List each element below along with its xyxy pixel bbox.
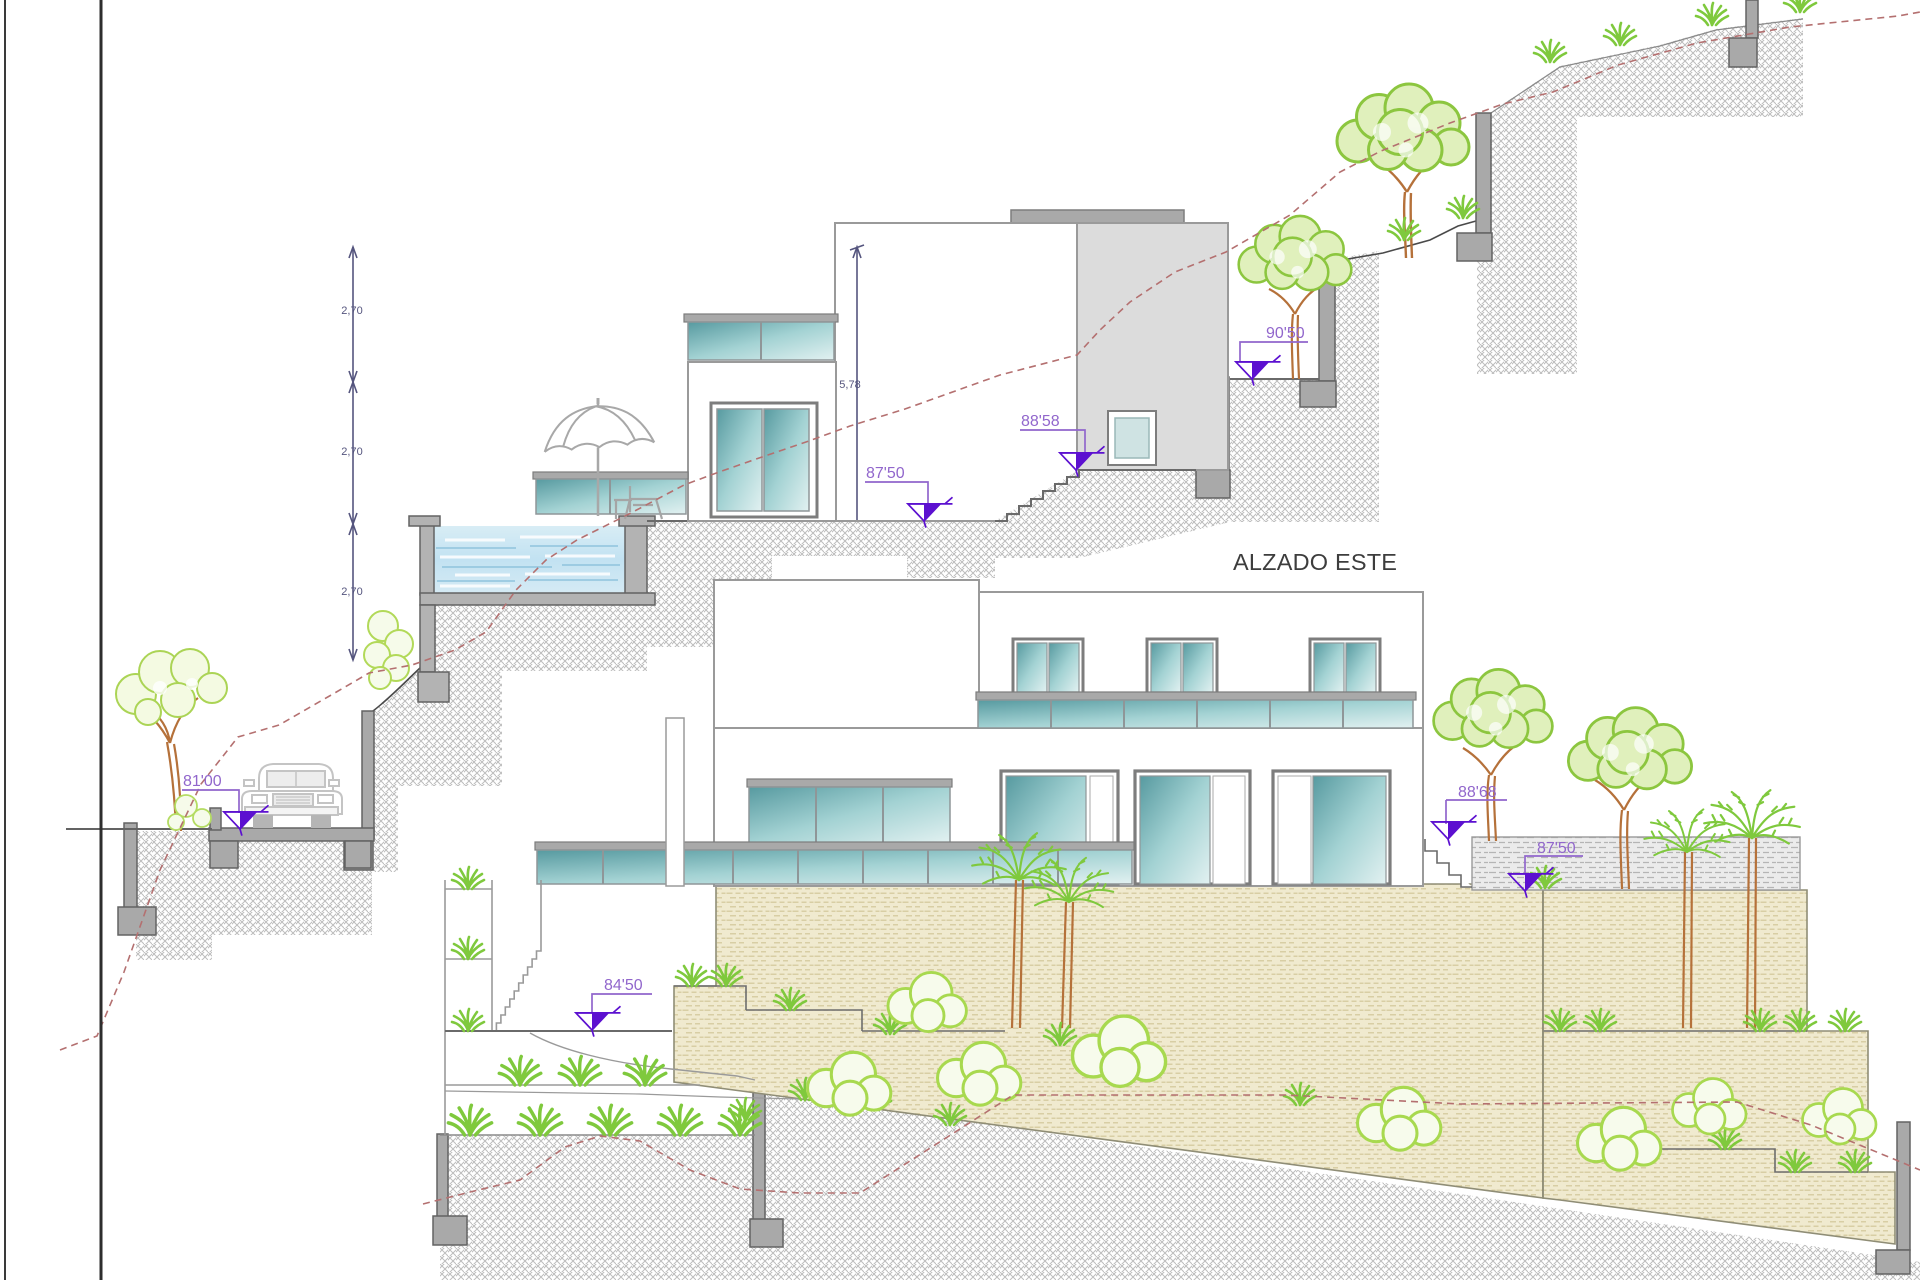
svg-text:88'58: 88'58 xyxy=(1021,413,1060,430)
svg-text:84'50: 84'50 xyxy=(604,977,643,994)
svg-text:87'50: 87'50 xyxy=(1537,840,1576,857)
svg-text:ALZADO ESTE: ALZADO ESTE xyxy=(1233,549,1397,575)
svg-text:2,70: 2,70 xyxy=(341,305,362,317)
svg-text:2,70: 2,70 xyxy=(341,446,362,458)
svg-text:88'68: 88'68 xyxy=(1458,784,1497,801)
svg-text:2,70: 2,70 xyxy=(341,586,362,598)
svg-text:81'00: 81'00 xyxy=(183,773,222,790)
svg-text:87'50: 87'50 xyxy=(866,465,905,482)
svg-text:5,78: 5,78 xyxy=(839,379,860,391)
svg-text:90'50: 90'50 xyxy=(1266,325,1305,342)
